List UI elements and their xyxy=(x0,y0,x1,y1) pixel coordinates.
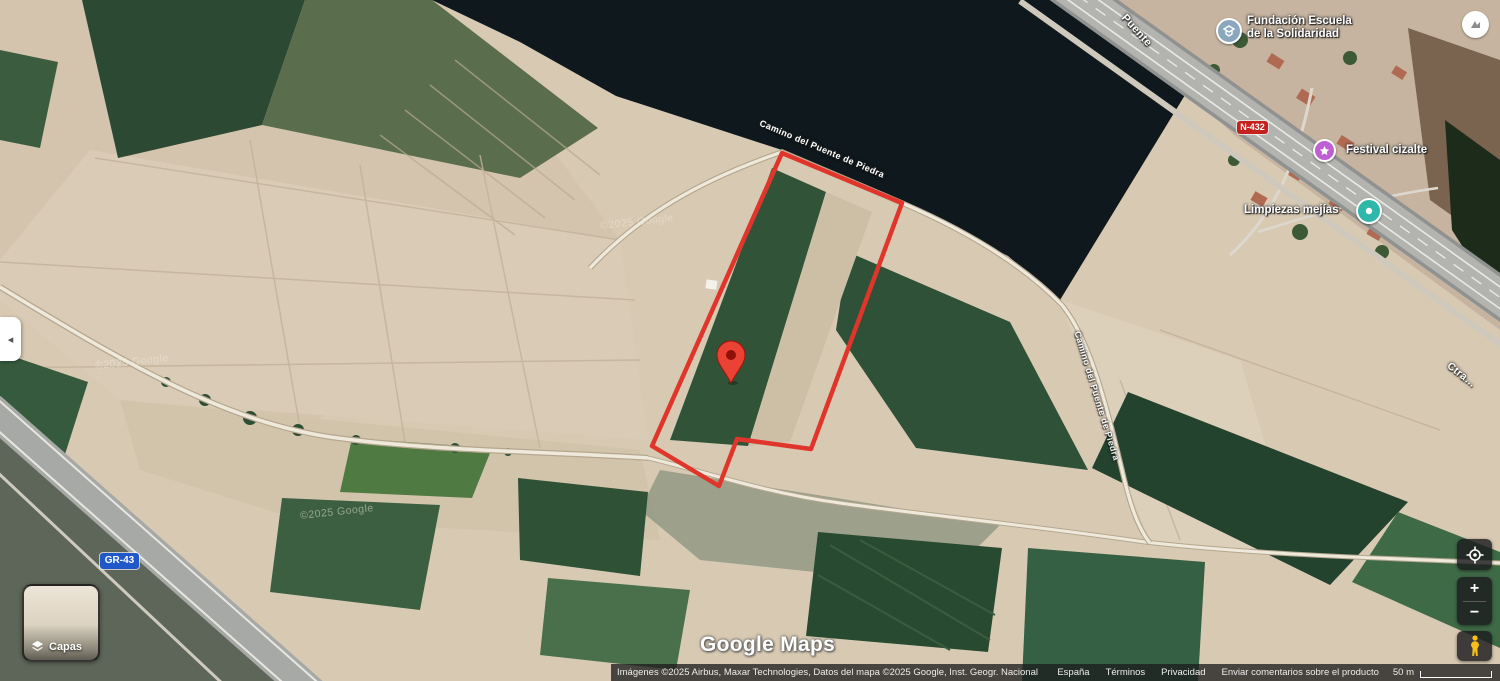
school-icon[interactable] xyxy=(1216,18,1242,44)
attribution-bar: Imágenes ©2025 Airbus, Maxar Technologie… xyxy=(611,664,1500,681)
google-maps-logo[interactable]: Google Maps xyxy=(700,633,835,657)
my-location-button[interactable] xyxy=(1457,539,1492,570)
region-link[interactable]: España xyxy=(1057,667,1089,678)
layers-label: Capas xyxy=(49,641,82,653)
privacy-link[interactable]: Privacidad xyxy=(1161,667,1205,678)
pegman-icon xyxy=(1468,635,1482,657)
scale-label: 50 m xyxy=(1393,667,1414,678)
road-badge-n432: N-432 xyxy=(1237,121,1268,134)
services-icon[interactable] xyxy=(1356,198,1382,224)
imagery-attribution: Imágenes ©2025 Airbus, Maxar Technologie… xyxy=(617,667,1038,678)
event-icon[interactable] xyxy=(1313,139,1336,162)
zoom-in-button[interactable]: + xyxy=(1457,577,1492,601)
poi-icon-partial[interactable] xyxy=(1462,11,1489,38)
chevron-left-icon: ◂ xyxy=(8,333,14,346)
google-maps-satellite-view: ©2025 Google ©2025 Google ©2025 Google C… xyxy=(0,0,1500,681)
terms-link[interactable]: Términos xyxy=(1106,667,1146,678)
poi-label-festival[interactable]: Festival cizalte xyxy=(1346,144,1427,157)
poi-label-limpiezas[interactable]: Limpiezas mejías xyxy=(1244,204,1339,217)
map-scale: 50 m xyxy=(1393,667,1492,678)
pegman-button[interactable] xyxy=(1457,631,1492,661)
layers-control[interactable]: Capas xyxy=(22,584,100,662)
zoom-control: + − xyxy=(1457,577,1492,625)
side-panel-collapse-button[interactable]: ◂ xyxy=(0,317,21,361)
poi-label-fundacion[interactable]: Fundación Escuela de la Solidaridad xyxy=(1247,15,1352,41)
scale-line xyxy=(1420,671,1492,678)
feedback-link[interactable]: Enviar comentarios sobre el producto xyxy=(1222,667,1379,678)
my-location-icon xyxy=(1466,546,1484,564)
road-badge-gr43: GR-43 xyxy=(100,553,139,569)
satellite-map[interactable] xyxy=(0,0,1500,681)
layers-icon xyxy=(31,640,44,653)
zoom-out-button[interactable]: − xyxy=(1457,602,1492,626)
